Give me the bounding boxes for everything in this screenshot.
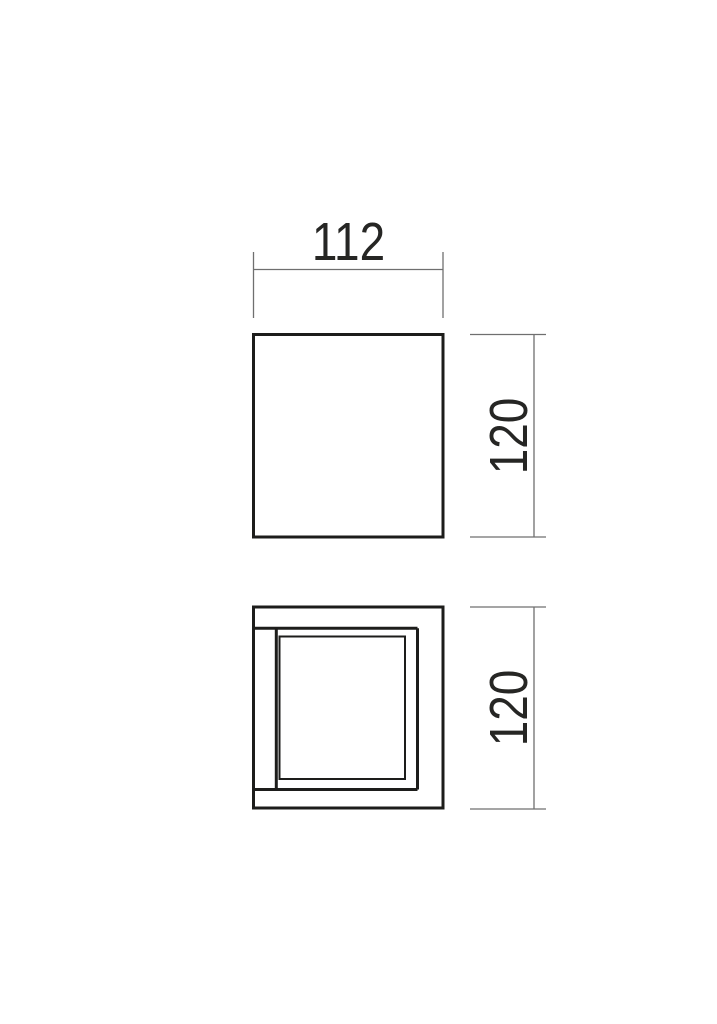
bottom-height-dimension: 120 [470,607,546,809]
front-width-label: 112 [312,212,385,272]
bottom-view-inner-panel-outline [280,637,406,780]
front-view-outline [254,335,444,538]
bottom-height-label: 120 [479,670,539,747]
front-height-label: 120 [479,398,539,475]
front-view [254,335,444,538]
bottom-view [254,607,444,808]
front-height-dimension: 120 [470,335,546,538]
drawing-sheet: 112 120 120 [0,0,717,1024]
dimension-drawing: 112 120 120 [0,0,717,1024]
front-width-dimension: 112 [254,212,444,318]
